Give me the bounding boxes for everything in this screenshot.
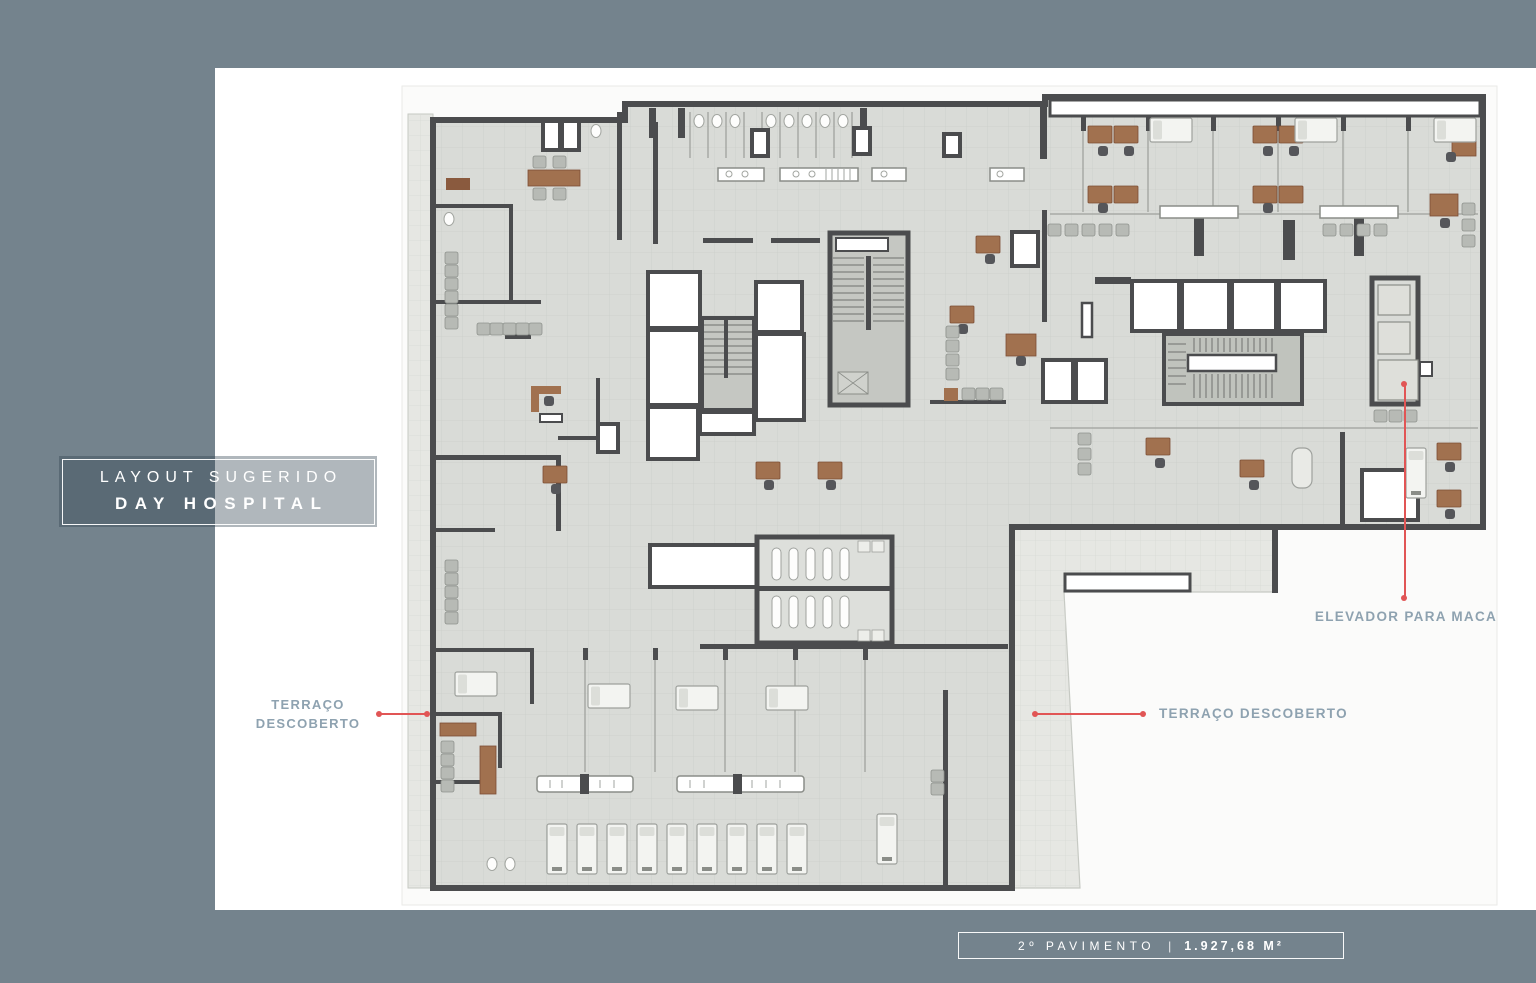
annotation-elevator: ELEVADOR PARA MACA [1311, 609, 1501, 624]
annotation-terrace-left-line2: DESCOBERTO [256, 716, 361, 731]
footer-badge: 2º PAVIMENTO | 1.927,68 M² [958, 932, 1344, 959]
frame-band-top [0, 0, 1536, 68]
annotation-terrace-left: TERRAÇO DESCOBERTO [250, 695, 366, 733]
footer-separator: | [1168, 939, 1171, 953]
leader-dot [1401, 381, 1407, 387]
stair-core-left [702, 318, 754, 410]
annotation-terrace-left-line1: TERRAÇO [271, 697, 344, 712]
title-line2: DAY HOSPITAL [108, 494, 329, 514]
terrace-strip-left [408, 114, 433, 888]
footer-floor-label: 2º PAVIMENTO [1018, 939, 1155, 953]
toilet-block [757, 537, 892, 643]
leader-line-terrace-right [1035, 713, 1143, 715]
stair-core-center [830, 233, 908, 405]
floor-plan [398, 82, 1502, 910]
footer-area-label: 1.927,68 M² [1184, 939, 1284, 953]
leader-dot [424, 711, 430, 717]
leader-dot [1401, 595, 1407, 601]
stair-core-wing [1164, 334, 1302, 404]
leader-dot [1032, 711, 1038, 717]
leader-dot [1140, 711, 1146, 717]
leader-line-elevator [1404, 385, 1406, 597]
annotation-terrace-right: TERRAÇO DESCOBERTO [1159, 706, 1348, 721]
title-box: LAYOUT SUGERIDO DAY HOSPITAL [59, 456, 377, 527]
leader-dot [376, 711, 382, 717]
wing-ledge [1050, 100, 1480, 116]
title-line1: LAYOUT SUGERIDO [94, 469, 342, 487]
leader-line-terrace-left [379, 713, 429, 715]
